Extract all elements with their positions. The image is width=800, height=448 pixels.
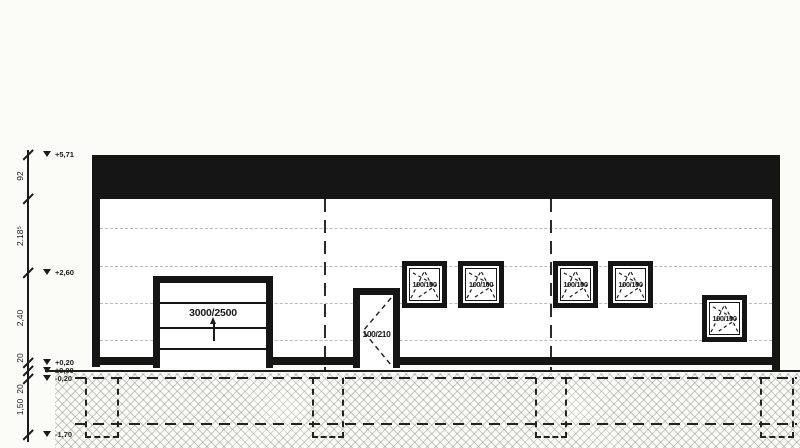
foundation-pier — [535, 378, 567, 438]
dimension-label: 1,50 — [15, 386, 25, 428]
window: 100/100 — [402, 261, 447, 308]
window-label: 100/100 — [555, 280, 596, 289]
level-marker-icon — [43, 359, 51, 365]
dimension-label: 92 — [15, 155, 25, 197]
level-marker-icon — [43, 151, 51, 157]
window: 100/100 — [702, 295, 747, 342]
wall-left-edge — [92, 199, 100, 367]
entry-door-leaf: 100/210 — [360, 295, 393, 368]
window-label: 100/100 — [460, 280, 502, 289]
window: 100/100 — [458, 261, 504, 308]
level-marker-icon — [43, 269, 51, 275]
foundation-pier — [760, 378, 794, 438]
cladding-seam-line — [100, 228, 772, 229]
roof-parapet-band — [92, 155, 780, 199]
foundation-pier — [312, 378, 344, 438]
axis-grid-line — [550, 199, 552, 371]
entry-door-label: 100/210 — [357, 329, 396, 339]
level-marker-icon — [43, 431, 51, 437]
garage-panel-line — [160, 302, 266, 304]
dimension-label: 2.18⁵ — [15, 215, 25, 257]
axis-grid-line — [324, 199, 326, 371]
level-marker-icon — [43, 375, 51, 381]
window-label: 100/100 — [404, 280, 445, 289]
window: 100/100 — [553, 261, 598, 308]
dimension-line — [27, 150, 29, 442]
dimension-label: 2,40 — [15, 297, 25, 339]
foundation-pier — [85, 378, 119, 438]
foundation-bottom-line — [75, 423, 797, 425]
level-label: +2,60 — [55, 269, 74, 277]
level-label: +5,71 — [55, 151, 74, 159]
window: 100/100 — [608, 261, 653, 308]
ground-line — [45, 370, 800, 372]
window-label: 100/100 — [610, 280, 651, 289]
ground-hatch — [55, 373, 800, 448]
foundation-top-line — [75, 377, 797, 379]
window-label: 100/100 — [704, 314, 745, 323]
garage-door-leaf: 3000/2500 — [160, 283, 266, 368]
arrow-up-icon — [213, 323, 215, 341]
entry-door: 100/210 — [353, 288, 400, 368]
garage-panel-line — [160, 348, 266, 350]
garage-door: 3000/2500 — [153, 276, 273, 368]
elevation-drawing: 92 2.18⁵ 2,40 20 20 1,50 +5,71 +2,60 +0,… — [0, 0, 800, 448]
wall-right-edge — [772, 199, 780, 370]
